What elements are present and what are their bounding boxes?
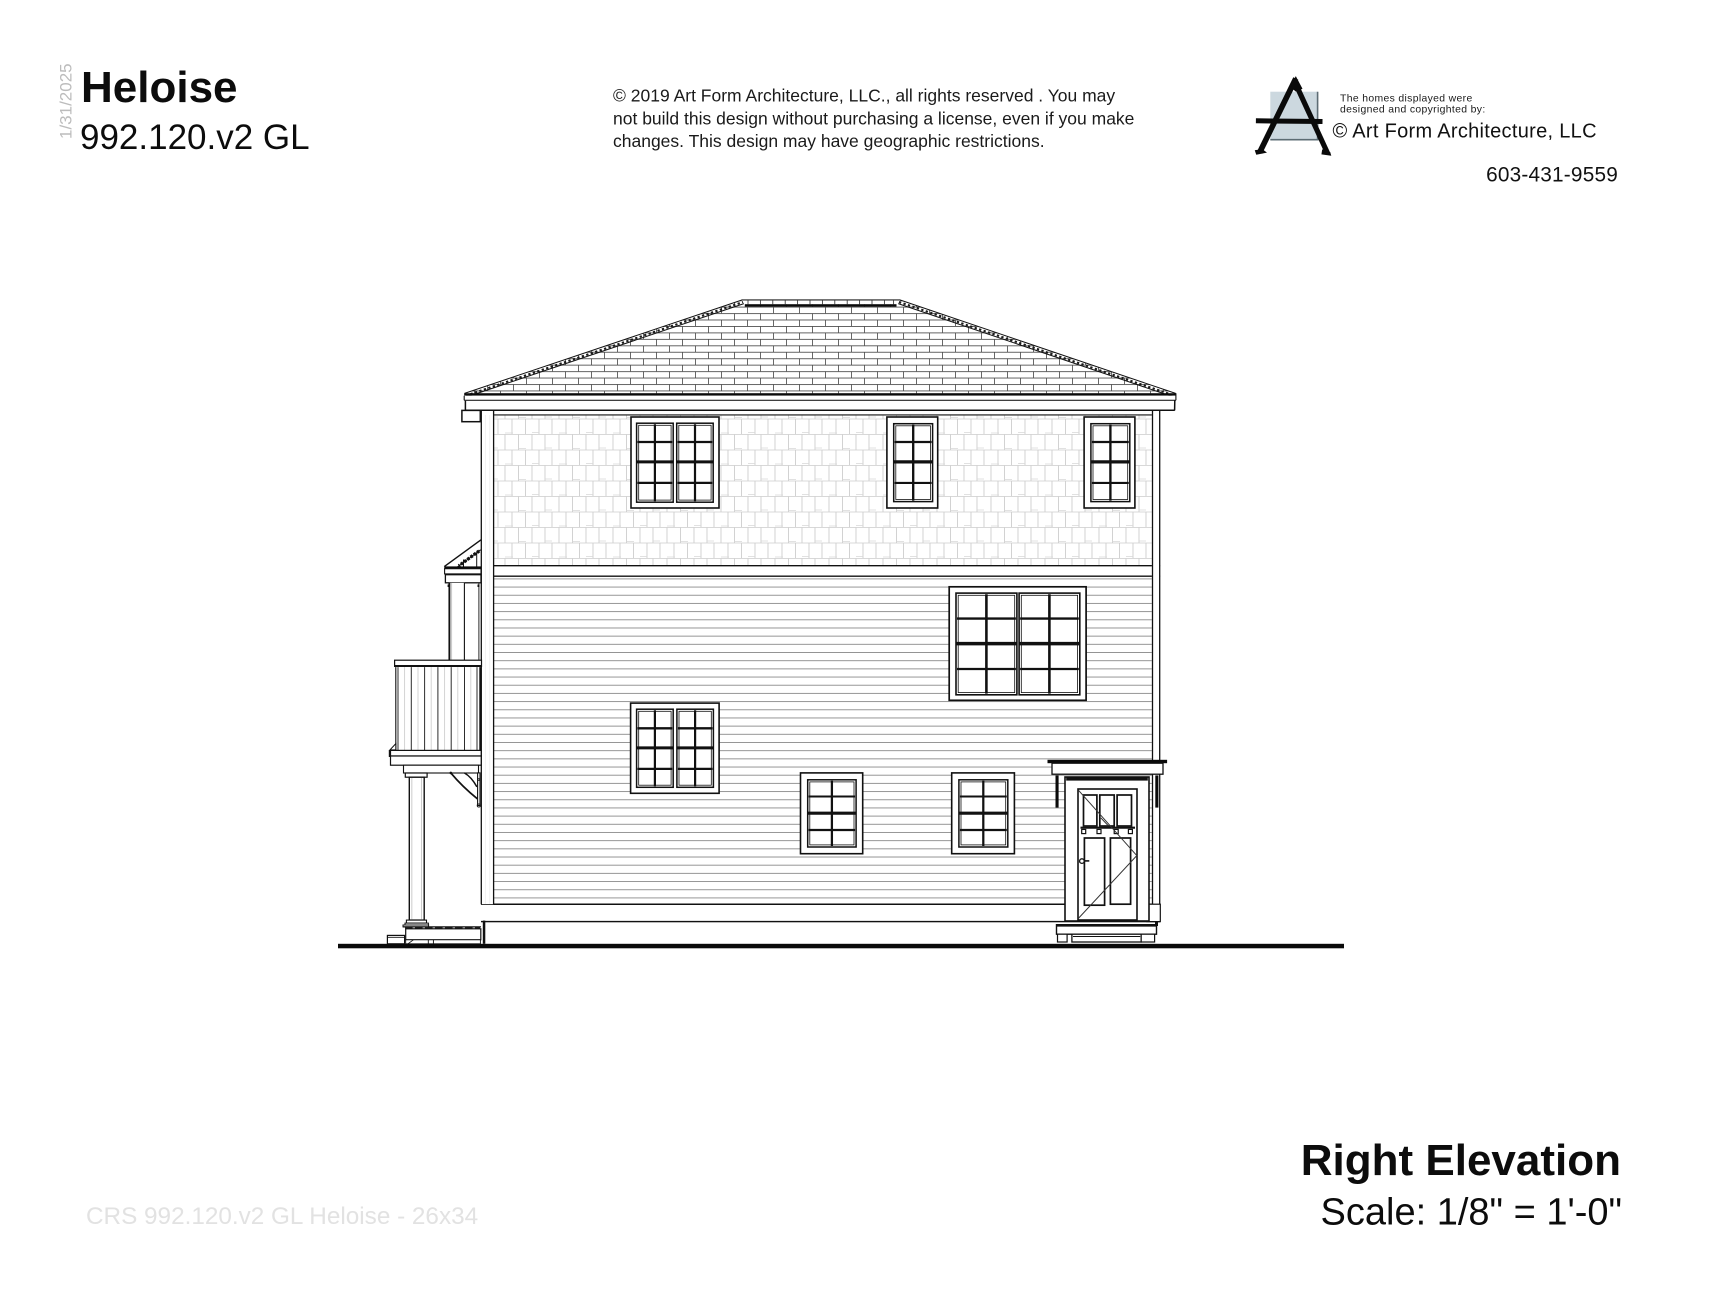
svg-text:Right Elevation: Right Elevation — [1301, 1136, 1621, 1185]
svg-text:CRS 992.120.v2 GL Heloise - 26: CRS 992.120.v2 GL Heloise - 26x34 — [86, 1203, 478, 1230]
svg-text:© Art Form Architecture, LLC: © Art Form Architecture, LLC — [1333, 120, 1597, 142]
svg-text:changes. This design may have: changes. This design may have geographic… — [613, 131, 1045, 151]
svg-text:© 2019 Art Form Architecture,: © 2019 Art Form Architecture, LLC., all … — [613, 86, 1115, 106]
svg-text:1/31/2025: 1/31/2025 — [57, 63, 76, 139]
svg-text:not build this design without: not build this design without purchasing… — [613, 108, 1134, 128]
svg-text:Scale: 1/8" = 1'-0": Scale: 1/8" = 1'-0" — [1321, 1192, 1622, 1234]
svg-text:992.120.v2 GL: 992.120.v2 GL — [80, 118, 310, 157]
svg-text:Heloise: Heloise — [81, 63, 238, 112]
svg-text:designed and copyrighted by:: designed and copyrighted by: — [1340, 104, 1486, 115]
svg-text:603-431-9559: 603-431-9559 — [1486, 163, 1618, 186]
svg-text:The homes displayed were: The homes displayed were — [1340, 93, 1473, 104]
